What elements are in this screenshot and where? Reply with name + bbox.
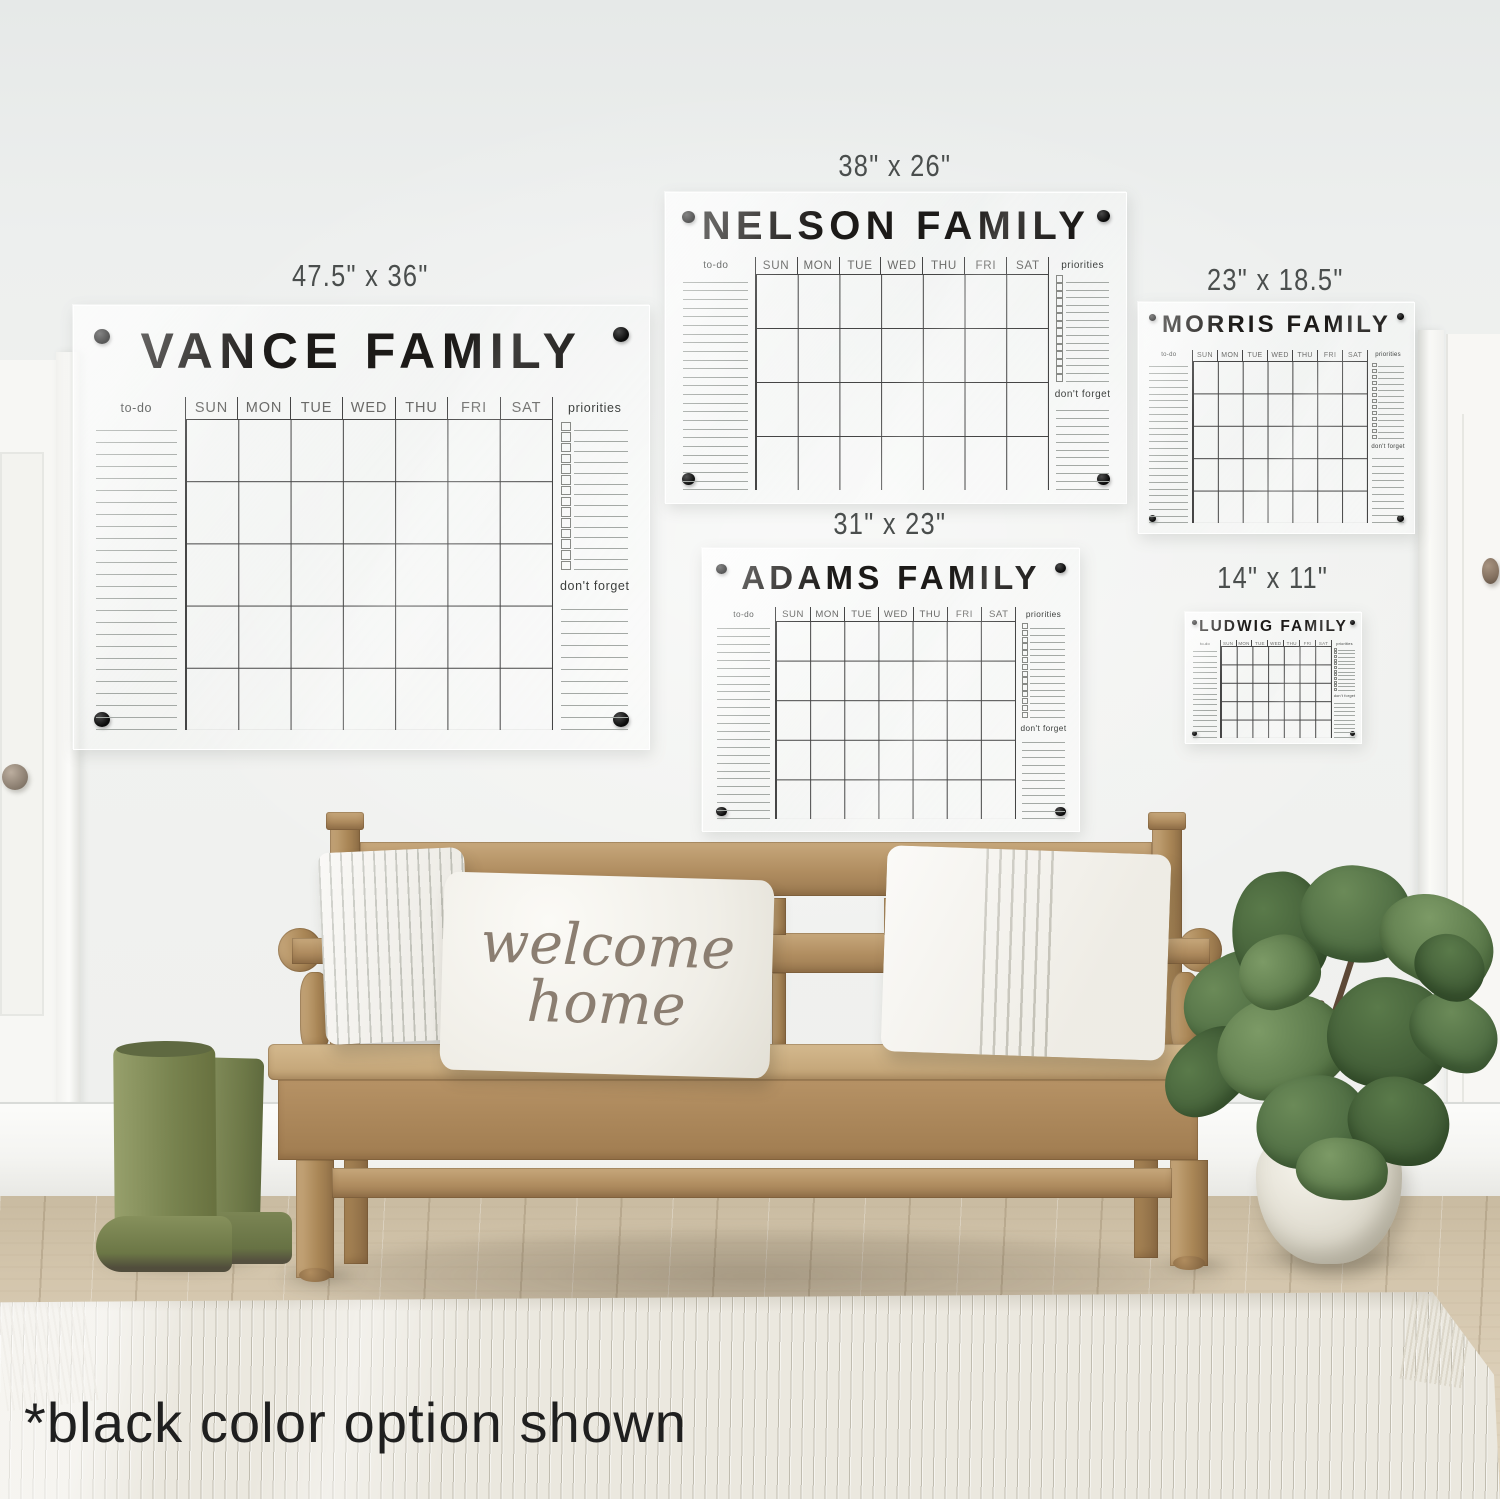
potted-plant [0, 0, 1500, 1499]
entryway-product-photo: *black color option shown 47.5" x 36" VA… [0, 0, 1500, 1499]
color-option-note: *black color option shown [24, 1390, 687, 1455]
